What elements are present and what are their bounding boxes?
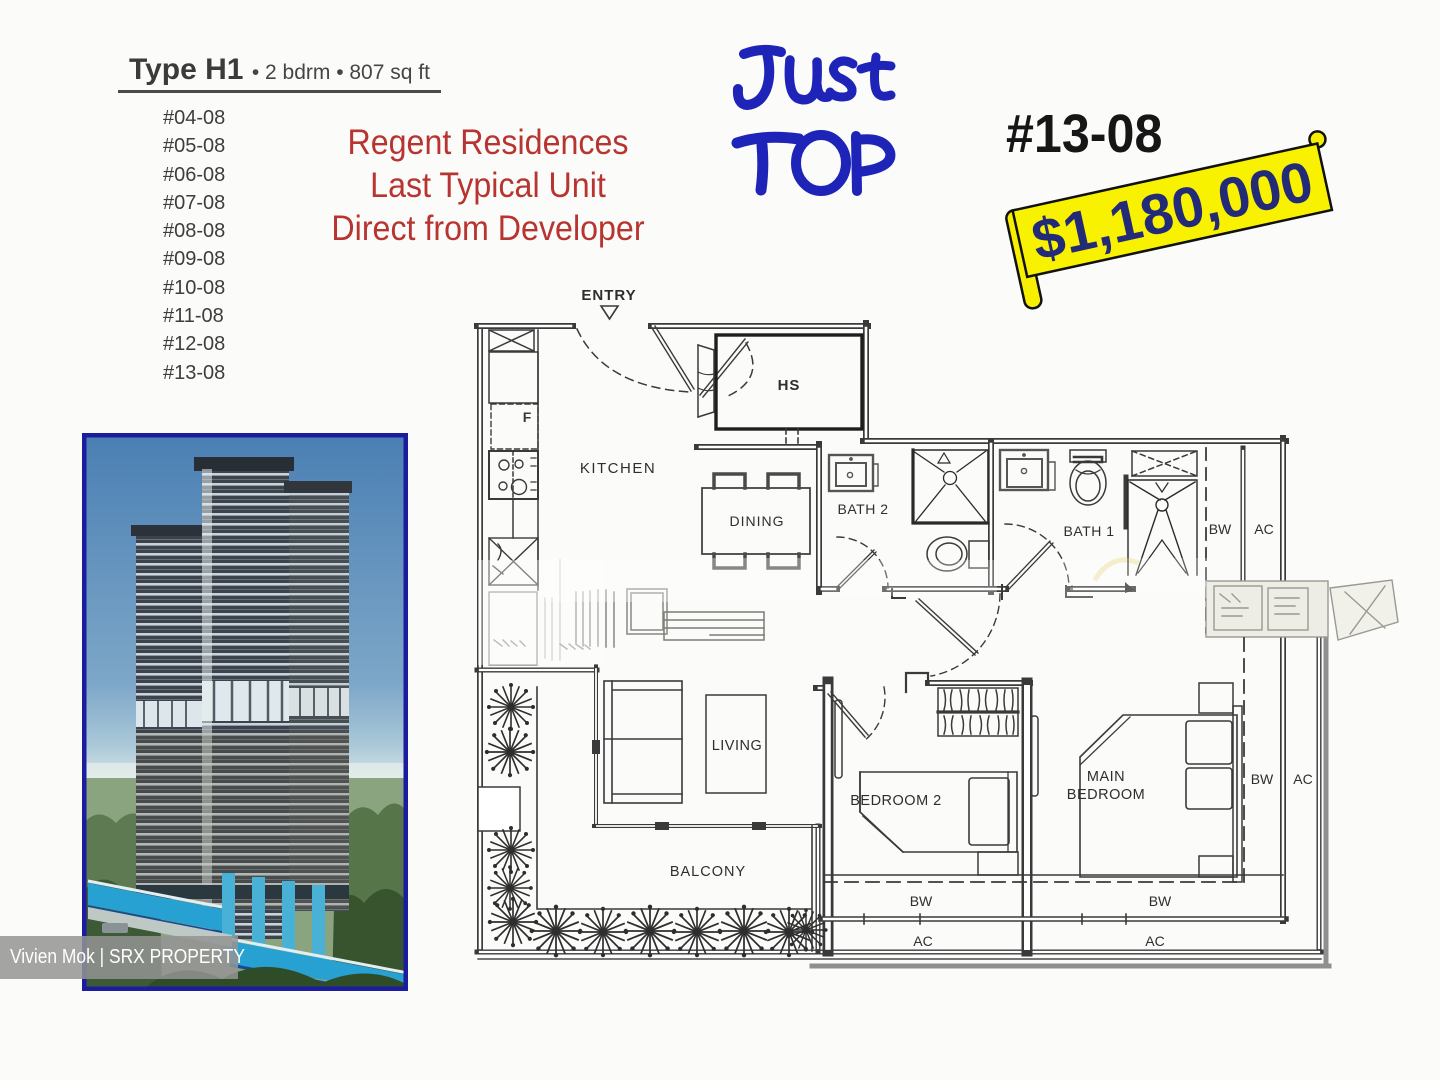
svg-text:BW: BW bbox=[910, 893, 933, 909]
svg-text:DINING: DINING bbox=[730, 513, 785, 529]
svg-text:AC: AC bbox=[1293, 771, 1312, 787]
svg-text:BATH 1: BATH 1 bbox=[1064, 523, 1115, 539]
svg-text:F: F bbox=[523, 409, 532, 425]
svg-text:BATH 2: BATH 2 bbox=[838, 501, 889, 517]
svg-text:BW: BW bbox=[1149, 893, 1172, 909]
svg-text:BEDROOM 2: BEDROOM 2 bbox=[850, 793, 942, 809]
svg-text:MAIN: MAIN bbox=[1087, 769, 1125, 785]
svg-text:AC: AC bbox=[913, 933, 932, 949]
svg-text:BALCONY: BALCONY bbox=[670, 864, 746, 880]
svg-text:KITCHEN: KITCHEN bbox=[580, 460, 656, 477]
svg-text:AC: AC bbox=[1145, 933, 1164, 949]
svg-text:ENTRY: ENTRY bbox=[581, 287, 636, 304]
svg-text:AC: AC bbox=[1254, 521, 1273, 537]
svg-text:BEDROOM: BEDROOM bbox=[1067, 787, 1145, 803]
svg-text:BW: BW bbox=[1209, 521, 1232, 537]
svg-text:BW: BW bbox=[1251, 771, 1274, 787]
svg-text:HS: HS bbox=[778, 377, 801, 394]
svg-text:LIVING: LIVING bbox=[712, 738, 763, 754]
